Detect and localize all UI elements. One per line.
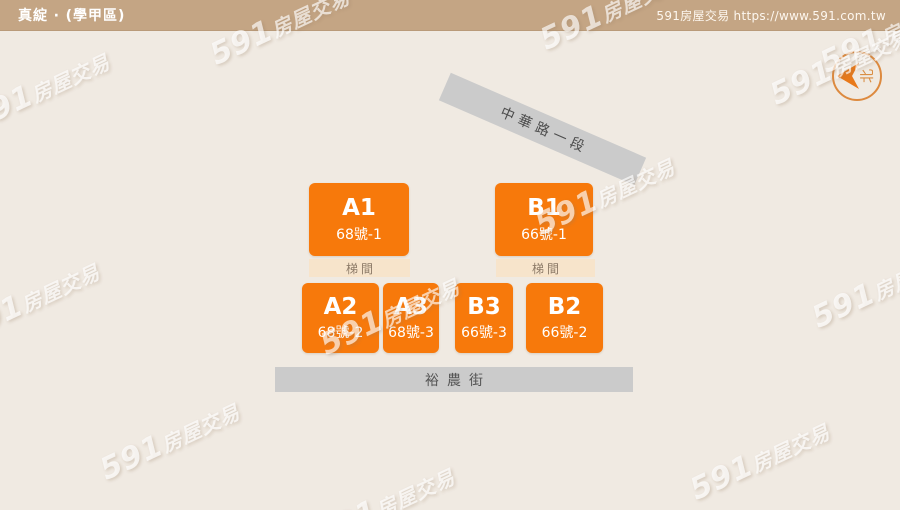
building-address: 68號-1 [336,224,382,244]
building-label: B3 [467,294,501,320]
building-block-b1[interactable]: B1 66號-1 [495,183,593,256]
stairwell-bar-b: 梯間 [496,259,595,277]
watermark-text: 591房屋交易 [685,413,835,508]
watermark-text: 591房屋交易 [0,253,105,348]
building-label: A3 [394,294,428,320]
road-label: 中華路一段 [497,102,592,158]
road-label: 裕農街 [425,370,491,390]
watermark-text: 591房屋交易 [310,458,460,510]
stairwell-label: 梯間 [532,260,562,277]
stairwell-bar-a: 梯間 [309,259,410,277]
building-label: A2 [324,294,358,320]
header-bar: 真綻 ‧ (學甲區) 591房屋交易 https://www.591.com.t… [0,0,900,31]
building-block-b2[interactable]: B2 66號-2 [526,283,603,353]
site-plan-page: 真綻 ‧ (學甲區) 591房屋交易 https://www.591.com.t… [0,0,900,510]
building-block-a1[interactable]: A1 68號-1 [309,183,409,256]
road-yunong: 裕農街 [275,367,633,392]
building-address: 68號-3 [388,322,434,342]
building-block-b3[interactable]: B3 66號-3 [455,283,513,353]
building-address: 66號-3 [461,322,507,342]
building-block-a3[interactable]: A3 68號-3 [383,283,439,353]
compass-north-label: 北 [860,69,876,83]
building-block-a2[interactable]: A2 68號-2 [302,283,379,353]
building-address: 66號-2 [542,322,588,342]
watermark-text: 591房屋交易 [95,393,245,488]
compass-north-icon: 北 [831,50,883,102]
building-label: A1 [342,195,376,221]
watermark-text: 591房屋交易 [807,241,900,336]
watermark-text: 591房屋交易 [0,43,115,138]
building-label: B2 [548,294,582,320]
building-address: 66號-1 [521,224,567,244]
building-label: B1 [527,195,561,221]
stairwell-label: 梯間 [346,260,376,277]
building-address: 68號-2 [318,322,364,342]
site-url-label: 591房屋交易 https://www.591.com.tw [656,7,886,24]
road-zhonghua: 中華路一段 [439,73,646,185]
page-title: 真綻 ‧ (學甲區) [18,5,125,25]
